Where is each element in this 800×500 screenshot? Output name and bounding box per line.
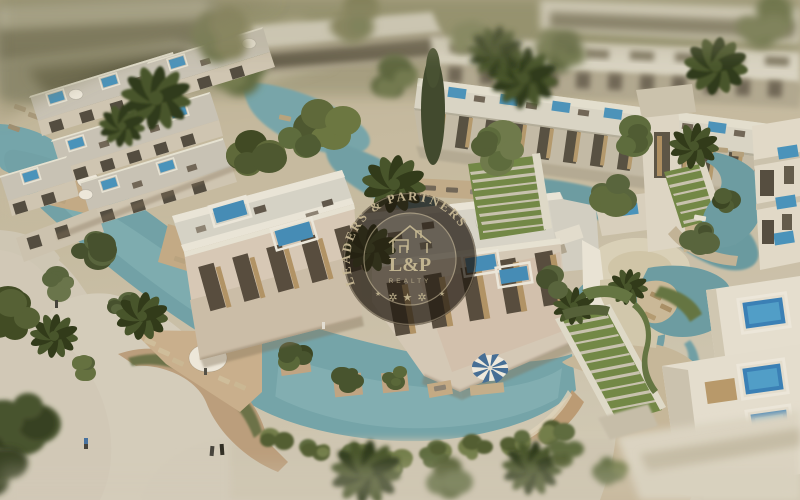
svg-text:L&P: L&P <box>389 254 431 276</box>
svg-text:★: ★ <box>439 290 445 298</box>
svg-text:REALTY: REALTY <box>389 278 432 285</box>
svg-text:★: ★ <box>375 290 381 298</box>
svg-text:✲★✲: ✲★✲ <box>388 292 431 304</box>
